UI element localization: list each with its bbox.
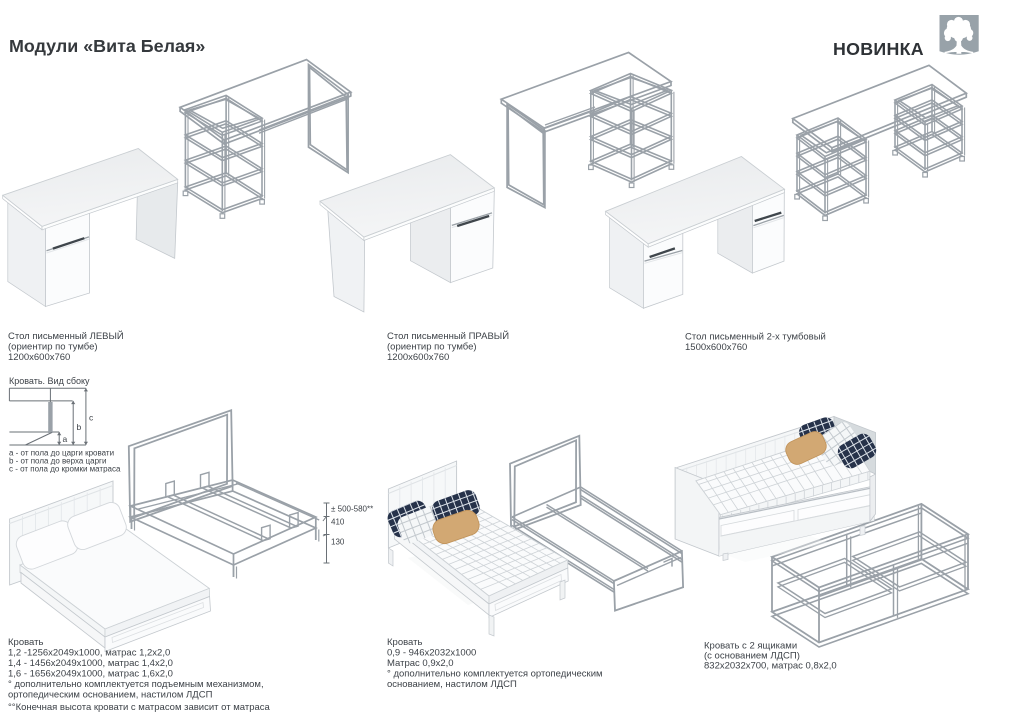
svg-text:1,4 - 1456х2049х1000, матрас 1: 1,4 - 1456х2049х1000, матрас 1,4х2,0	[8, 658, 173, 669]
svg-text:Матрас 0,9х2,0: Матрас 0,9х2,0	[387, 658, 454, 669]
svg-text:Стол письменный 2-х тумбовый: Стол письменный 2-х тумбовый	[685, 332, 826, 343]
svg-text:1200х600х760: 1200х600х760	[8, 352, 70, 363]
svg-text:(ориентир по тумбе): (ориентир по тумбе)	[8, 342, 98, 353]
svg-text:°°Конечная высота кровати с ма: °°Конечная высота кровати с матрасом зав…	[8, 702, 271, 713]
svg-text:130: 130	[331, 538, 345, 547]
svg-text:b: b	[77, 422, 82, 432]
svg-text:1,6 - 1656х2049х1000, матрас 1: 1,6 - 1656х2049х1000, матрас 1,6х2,0	[8, 669, 173, 680]
svg-text:Стол письменный ЛЕВЫЙ: Стол письменный ЛЕВЫЙ	[8, 330, 124, 342]
svg-text:a: a	[63, 434, 68, 444]
svg-text:Модули «Вита Белая»: Модули «Вита Белая»	[9, 36, 205, 56]
svg-text:Стол письменный ПРАВЫЙ: Стол письменный ПРАВЫЙ	[387, 330, 509, 342]
svg-text:1200х600х760: 1200х600х760	[387, 352, 449, 363]
svg-text:основанием, настилом ЛДСП: основанием, настилом ЛДСП	[387, 679, 517, 690]
svg-text:410: 410	[331, 518, 345, 527]
svg-text:° дополнительно комплектуется: ° дополнительно комплектуется подъемным …	[8, 679, 264, 690]
svg-text:с - от пола до кромки матраса: с - от пола до кромки матраса	[9, 465, 121, 474]
svg-text:ортопедическим основанием, нас: ортопедическим основанием, настилом ЛДСП	[8, 690, 213, 701]
svg-text:1,2 -1256х2049х1000, матрас 1,: 1,2 -1256х2049х1000, матрас 1,2х2,0	[8, 648, 170, 659]
svg-text:° дополнительно комплектуется: ° дополнительно комплектуется ортопедиче…	[387, 669, 603, 680]
svg-text:Кровать. Вид сбоку: Кровать. Вид сбоку	[9, 376, 90, 386]
svg-text:832х2032х700, матрас 0,8х2,0: 832х2032х700, матрас 0,8х2,0	[704, 661, 837, 672]
svg-text:± 500-580**: ± 500-580**	[331, 505, 373, 514]
svg-text:Кровать: Кровать	[8, 637, 43, 648]
svg-text:(ориентир по тумбе): (ориентир по тумбе)	[387, 342, 477, 353]
svg-text:1500х600х760: 1500х600х760	[685, 342, 747, 353]
svg-text:0,9 - 946х2032х1000: 0,9 - 946х2032х1000	[387, 648, 476, 659]
svg-text:Кровать: Кровать	[387, 637, 422, 648]
svg-text:НОВИНКА: НОВИНКА	[833, 39, 924, 59]
